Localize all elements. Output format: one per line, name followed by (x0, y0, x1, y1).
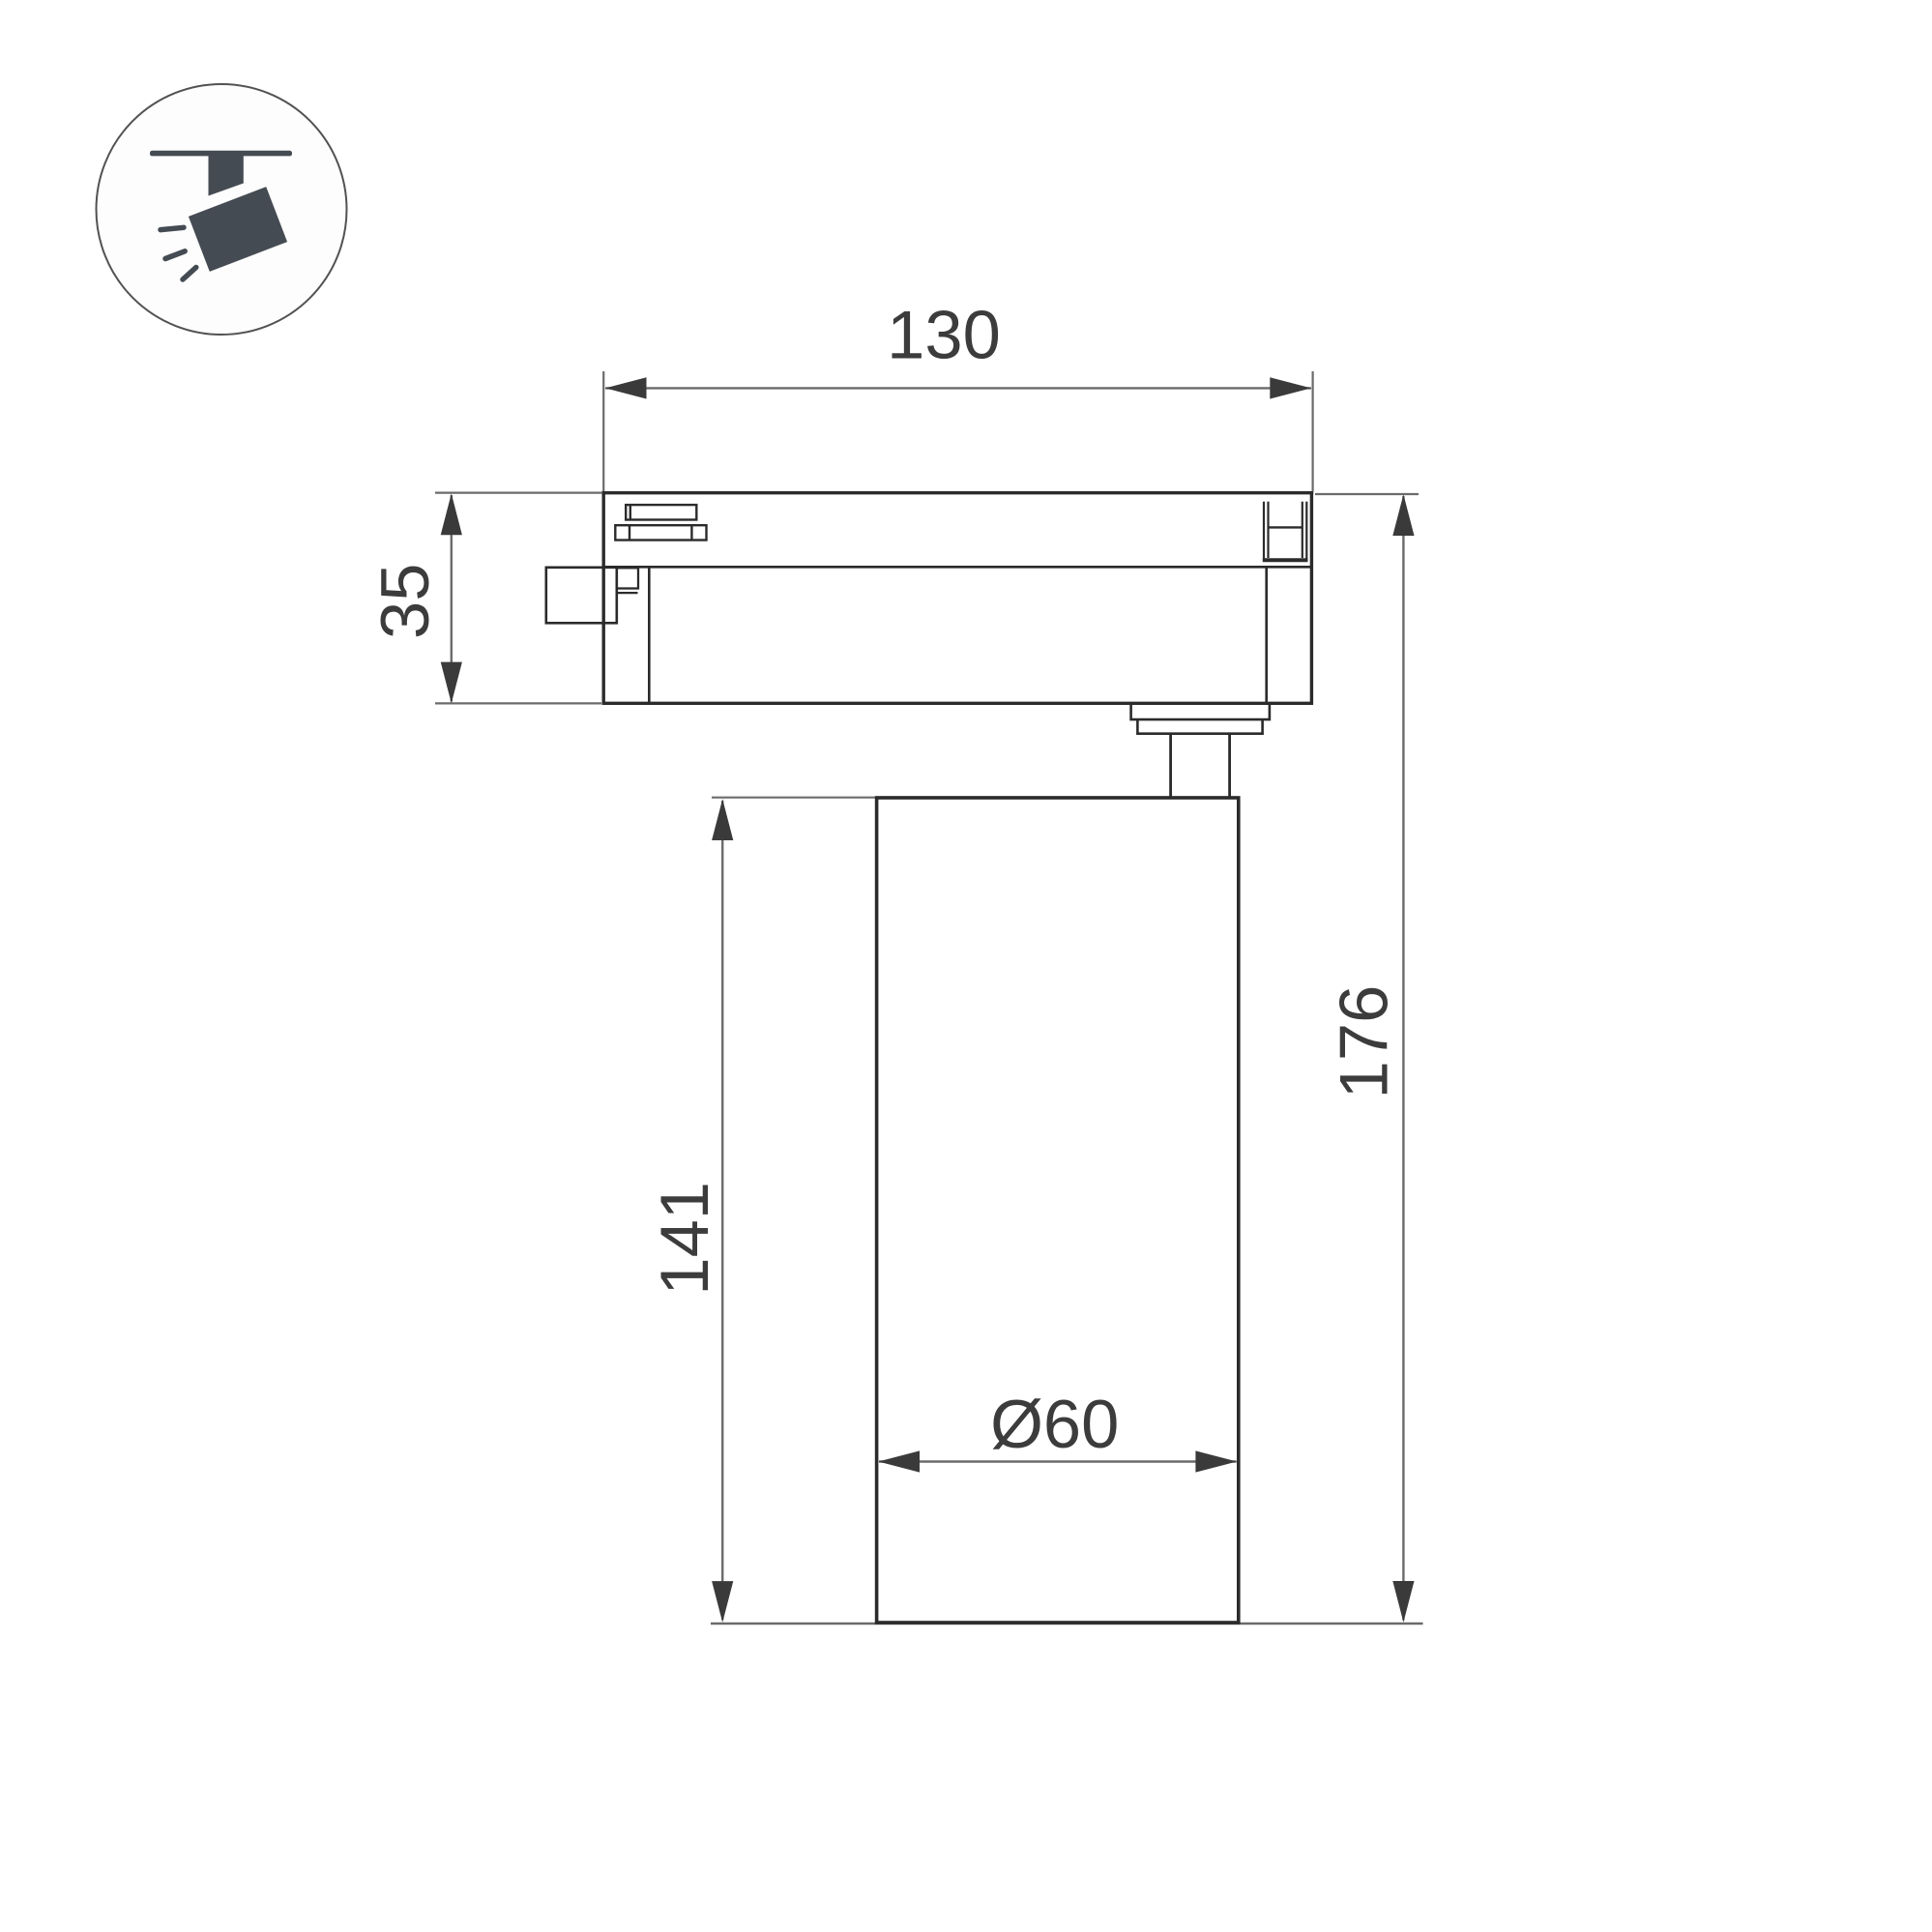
svg-text:141: 141 (646, 1182, 722, 1296)
svg-text:176: 176 (1326, 985, 1402, 1099)
svg-text:Ø60: Ø60 (990, 1386, 1119, 1462)
svg-text:130: 130 (887, 297, 1001, 373)
svg-text:35: 35 (366, 564, 443, 639)
